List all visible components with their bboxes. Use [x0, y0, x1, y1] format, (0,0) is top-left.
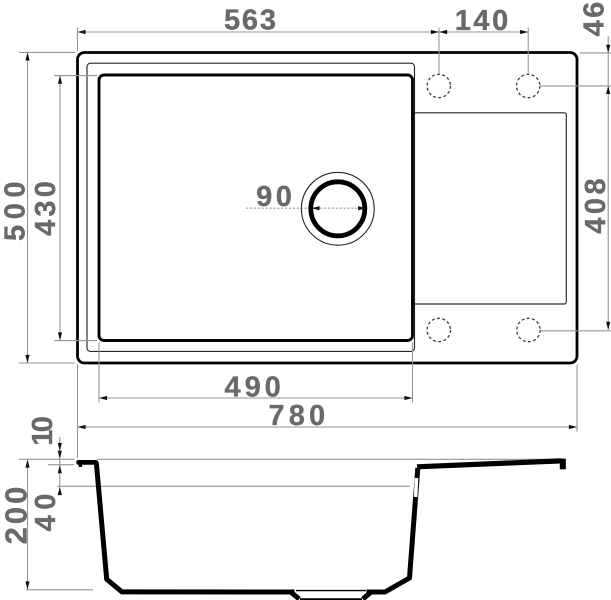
svg-text:500: 500 — [0, 176, 32, 241]
svg-text:490: 490 — [225, 371, 285, 403]
svg-text:563: 563 — [224, 4, 278, 36]
svg-text:140: 140 — [455, 5, 511, 37]
svg-text:46: 46 — [578, 0, 610, 36]
svg-text:200: 200 — [0, 484, 33, 545]
svg-text:780: 780 — [268, 400, 329, 432]
svg-text:10: 10 — [27, 417, 59, 445]
svg-text:40: 40 — [30, 488, 62, 531]
svg-text:430: 430 — [30, 178, 62, 236]
svg-text:90: 90 — [256, 181, 295, 213]
svg-text:408: 408 — [580, 175, 611, 234]
